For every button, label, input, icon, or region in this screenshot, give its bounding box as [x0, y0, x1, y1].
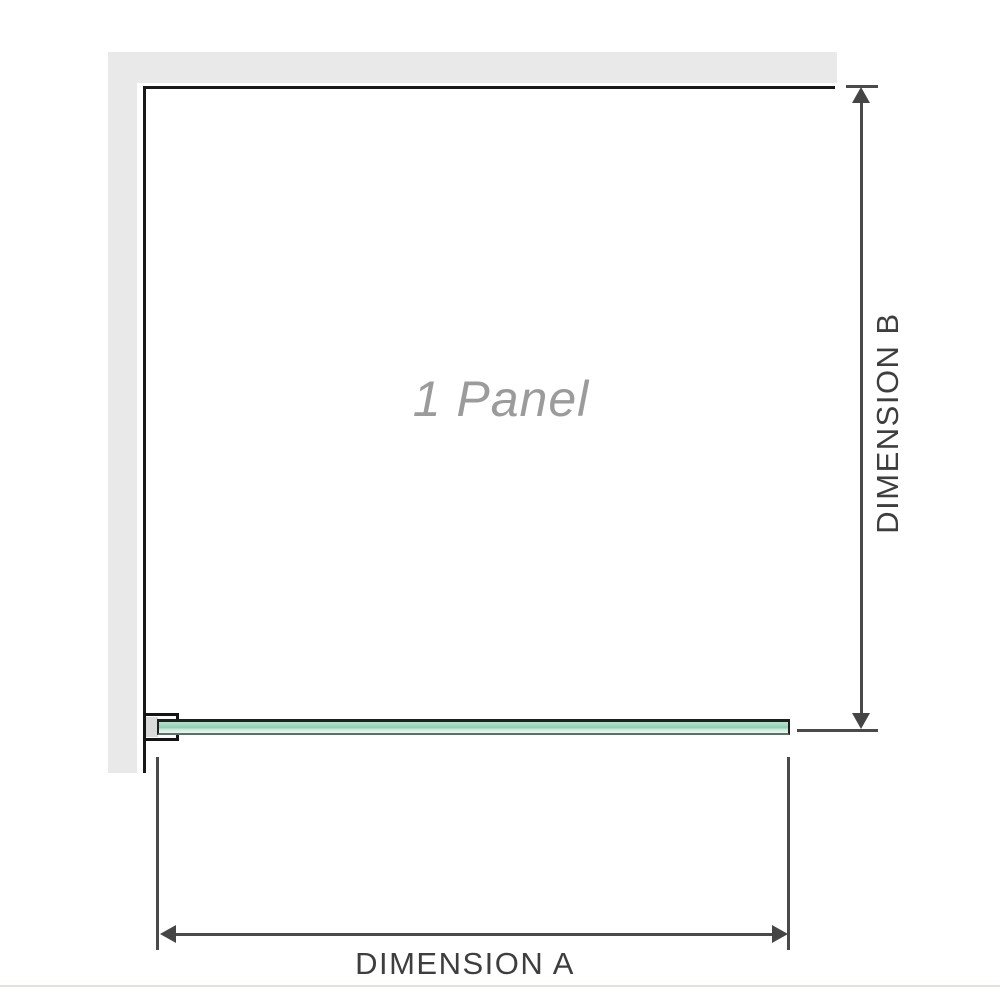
dimension-a-extension-right [787, 757, 790, 950]
wall-left [108, 52, 137, 773]
arrow-right-icon [772, 925, 788, 943]
wall-top [108, 52, 837, 83]
glass-panel [157, 719, 790, 735]
dimension-a-line [173, 933, 775, 936]
panel-count-label: 1 Panel [301, 368, 701, 430]
panel-outline-left [143, 86, 146, 773]
arrow-left-icon [160, 925, 176, 943]
panel-outline-top [143, 86, 835, 89]
arrow-up-icon [852, 87, 870, 103]
dimension-b-tick-bottom [797, 729, 878, 732]
arrow-down-icon [852, 713, 870, 729]
dimension-b-label: DIMENSION B [873, 323, 903, 523]
dimension-b-line [860, 99, 863, 716]
image-bottom-edge [0, 985, 1000, 987]
product-dimension-diagram: 1 Panel DIMENSION B DIMENSION A [0, 0, 1000, 1000]
dimension-a-label: DIMENSION A [315, 946, 615, 982]
dimension-a-extension-left [156, 757, 159, 950]
